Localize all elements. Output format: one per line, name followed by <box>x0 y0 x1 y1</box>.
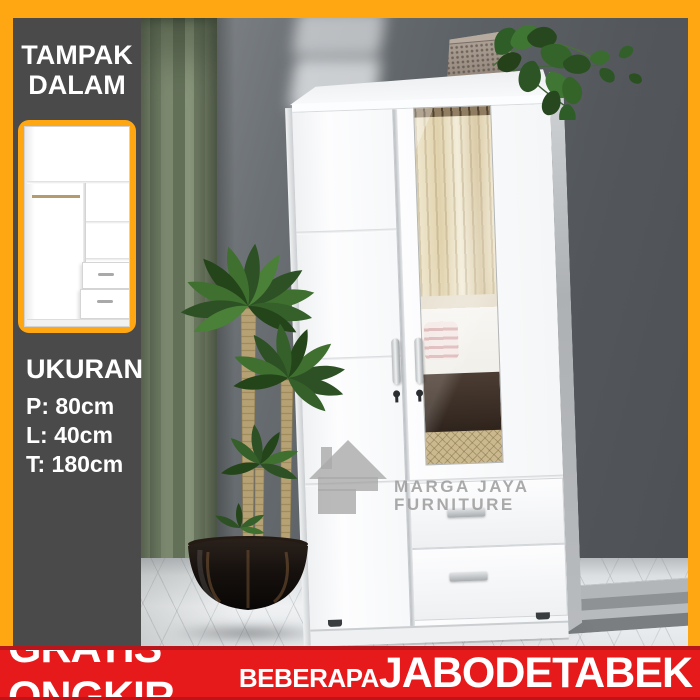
dimensions-block: UKURAN P: 80cm L: 40cm T: 180cm <box>26 354 143 480</box>
drawer <box>413 544 568 621</box>
inset-base <box>27 319 130 326</box>
potted-plant-graphic <box>148 230 353 632</box>
brand-line2: FURNITURE <box>394 496 530 514</box>
inset-drawer <box>80 289 130 319</box>
brand-line1: MARGA JAYA <box>394 478 530 496</box>
inset-hanging-rod <box>32 195 80 198</box>
inset-shelf <box>86 258 130 261</box>
brand-name: MARGA JAYA FURNITURE <box>394 478 530 514</box>
panel-heading: TAMPAK DALAM <box>13 40 141 100</box>
info-panel: TAMPAK DALAM UKURAN P: 80cm L: 40cm T: 1… <box>13 18 141 646</box>
inset-drawer <box>82 262 130 289</box>
right-door-handle <box>414 337 424 383</box>
heading-line1: TAMPAK <box>13 40 141 70</box>
window-light-patch <box>292 18 386 56</box>
wardrobe-foot <box>536 612 550 619</box>
left-door-handle <box>391 338 401 384</box>
ivy-plant-graphic <box>433 18 651 120</box>
dimension-item: P: 80cm <box>26 392 143 421</box>
inset-shelf <box>86 221 130 224</box>
dimension-item: L: 40cm <box>26 421 143 450</box>
banner-region-text: JABODETABEK <box>379 649 692 698</box>
dimensions-title: UKURAN <box>26 354 143 385</box>
watermark: MARGA JAYA FURNITURE <box>308 438 530 516</box>
inset-shelf <box>27 181 130 184</box>
house-icon <box>308 438 388 516</box>
orange-frame-right <box>688 0 700 646</box>
orange-frame-left <box>0 0 13 646</box>
interior-inset-diagram <box>24 126 130 327</box>
mirror-glass-sheen <box>414 106 502 464</box>
drawer-handle <box>449 571 487 581</box>
promo-banner: GRATIS ONGKIR BEBERAPA JABODETABEK <box>0 646 700 700</box>
orange-frame-top <box>0 0 700 18</box>
mirror <box>413 105 503 466</box>
heading-line2: DALAM <box>13 70 141 100</box>
product-image: MARGA JAYA FURNITURE TAMPAK DALAM <box>0 0 700 700</box>
banner-free-shipping-text: GRATIS ONGKIR <box>8 646 239 700</box>
interior-inset <box>18 120 136 333</box>
banner-qualifier-text: BEBERAPA <box>239 653 379 694</box>
dimension-item: T: 180cm <box>26 450 143 479</box>
